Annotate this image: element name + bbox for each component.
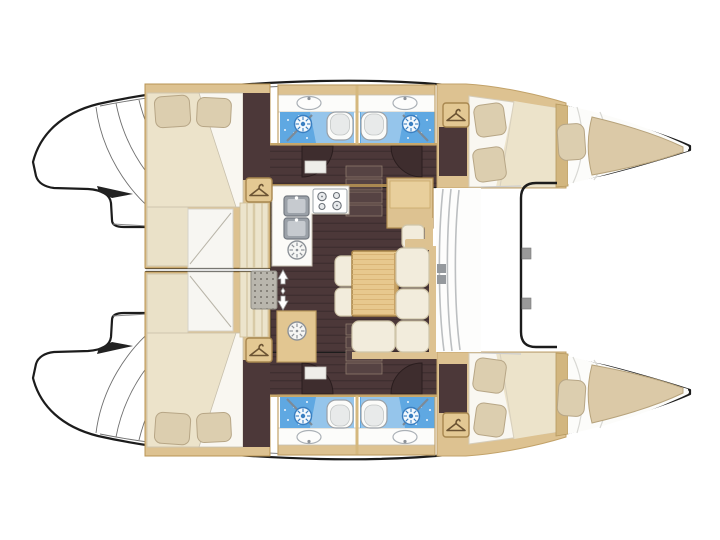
galley-sink-icon	[284, 218, 309, 239]
beam-fitting	[522, 248, 531, 259]
sofa-cushion	[352, 321, 395, 352]
sofa-cushion	[396, 321, 429, 352]
floorplan-svg: Catamaran interior layout plan, top view…	[0, 0, 720, 540]
non-skid-mat	[251, 271, 277, 309]
beam-fitting	[522, 298, 531, 309]
hanging-locker	[443, 413, 469, 437]
hanging-locker	[246, 338, 272, 362]
stove-burners-icon	[313, 189, 347, 213]
front-windows	[436, 188, 481, 352]
cold-storage-cabinet	[277, 311, 316, 362]
sofa-cushion	[396, 289, 429, 319]
hanging-locker	[246, 178, 272, 202]
companionway-entry	[251, 270, 288, 310]
hanging-locker	[443, 103, 469, 127]
door-hinge	[437, 264, 446, 273]
galley-sink-icon	[284, 196, 309, 216]
galley-fridge-vent	[288, 241, 306, 259]
sofa-cushion	[396, 248, 429, 287]
freezer-vent	[288, 322, 306, 340]
catamaran-floorplan: Catamaran interior layout plan, top view…	[0, 0, 720, 540]
door-hinge	[437, 275, 446, 284]
